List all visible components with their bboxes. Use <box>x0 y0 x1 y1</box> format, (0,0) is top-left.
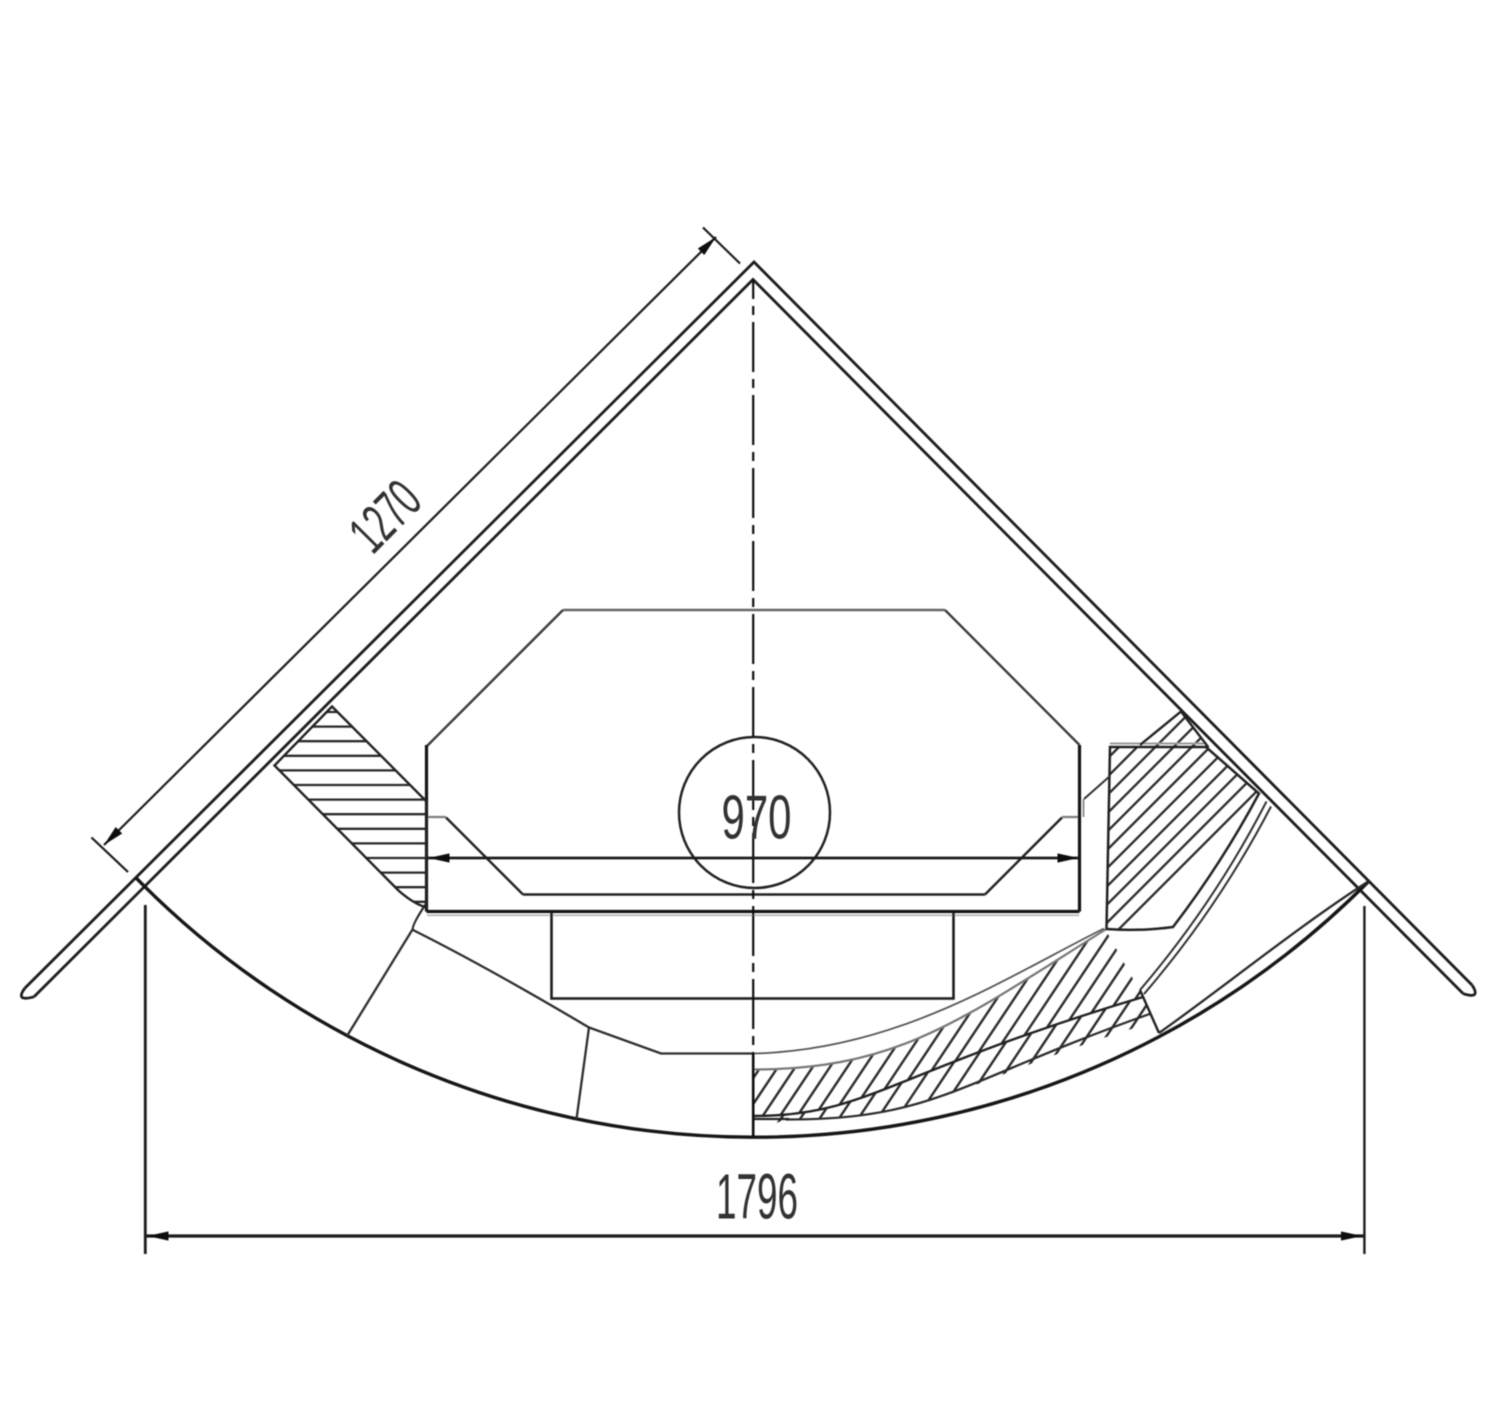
svg-text:1270: 1270 <box>337 468 433 564</box>
svg-text:1796: 1796 <box>716 1161 798 1233</box>
svg-text:970: 970 <box>722 784 792 853</box>
